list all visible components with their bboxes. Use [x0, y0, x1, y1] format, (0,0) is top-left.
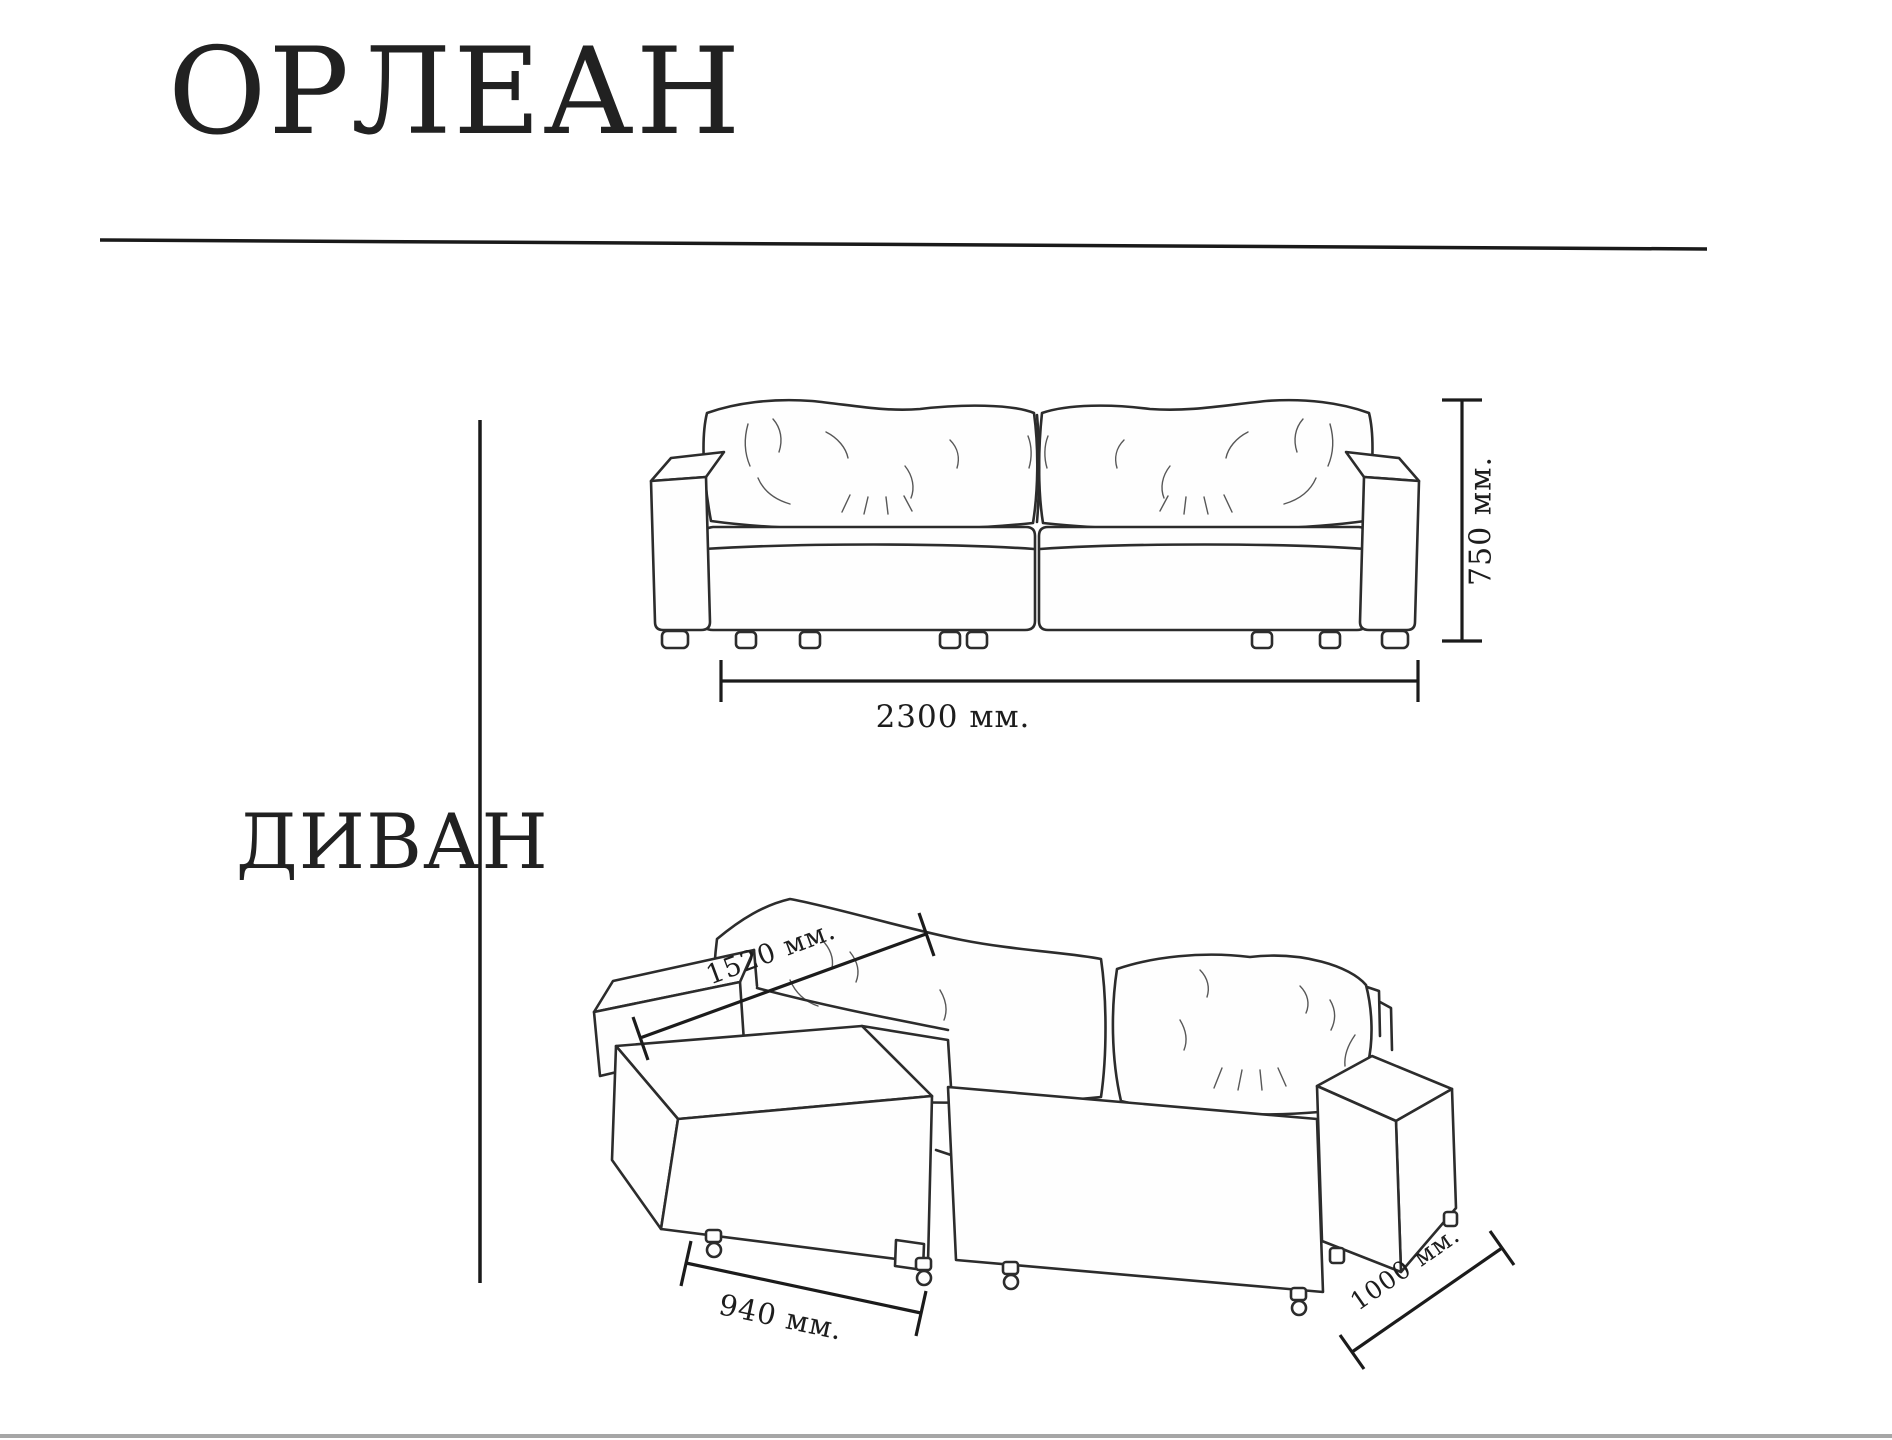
sofa-front-view-drawing — [651, 400, 1482, 702]
category-label: ДИВАН — [236, 804, 549, 880]
front-view-feet — [662, 631, 1408, 648]
back-corner-edge-2 — [1380, 1002, 1392, 1050]
ottoman-front — [661, 1096, 932, 1263]
front-left-back-pillow — [704, 400, 1038, 530]
page-title: ОРЛЕАН — [168, 33, 742, 153]
front-left-seat — [703, 527, 1035, 630]
product-spec-page: ОРЛЕАН ДИВАН 750 мм. 2300 мм. 1520 мм. 9… — [0, 0, 1892, 1440]
front-right-arm — [1360, 477, 1419, 630]
front-view-width-dimension — [721, 660, 1418, 702]
front-view-height-label: 750 мм. — [1464, 456, 1499, 586]
front-view-width-label: 2300 мм. — [876, 699, 1031, 735]
front-right-seat — [1039, 527, 1368, 630]
title-underline — [100, 240, 1707, 249]
front-right-back-pillow — [1039, 400, 1372, 530]
front-left-arm — [651, 477, 710, 630]
